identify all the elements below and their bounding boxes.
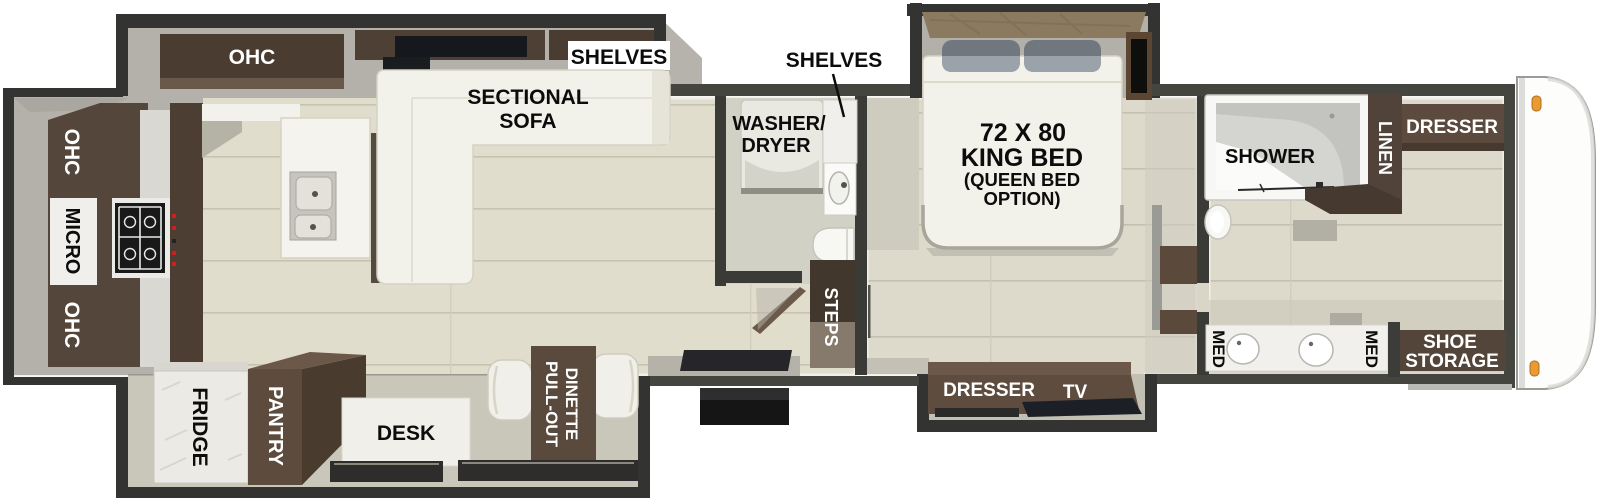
svg-text:TV: TV <box>1063 382 1088 403</box>
svg-text:DRYER: DRYER <box>741 135 811 157</box>
svg-text:MED: MED <box>1362 330 1381 368</box>
svg-text:FRIDGE: FRIDGE <box>188 387 211 466</box>
svg-text:DINETTE: DINETTE <box>562 368 581 441</box>
svg-text:STEPS: STEPS <box>821 287 841 346</box>
svg-text:SHELVES: SHELVES <box>786 49 882 72</box>
svg-text:MED: MED <box>1209 330 1228 368</box>
svg-text:SOFA: SOFA <box>499 110 556 133</box>
svg-text:OPTION): OPTION) <box>983 188 1060 209</box>
svg-text:PANTRY: PANTRY <box>264 386 286 467</box>
svg-text:OHC: OHC <box>60 129 83 176</box>
svg-text:72 X 80: 72 X 80 <box>980 119 1066 147</box>
svg-text:MICRO: MICRO <box>61 208 83 275</box>
svg-text:OHC: OHC <box>60 302 83 349</box>
svg-text:SHOE: SHOE <box>1423 332 1477 353</box>
svg-text:OHC: OHC <box>229 46 276 69</box>
svg-text:PULL-OUT: PULL-OUT <box>542 361 561 448</box>
svg-text:KING BED: KING BED <box>961 144 1083 172</box>
svg-text:(QUEEN BED: (QUEEN BED <box>964 169 1080 190</box>
svg-text:LINEN: LINEN <box>1375 121 1395 175</box>
svg-text:SHOWER: SHOWER <box>1225 146 1316 168</box>
svg-text:STORAGE: STORAGE <box>1405 351 1499 372</box>
svg-text:DESK: DESK <box>377 422 435 445</box>
svg-text:SECTIONAL: SECTIONAL <box>467 86 589 109</box>
svg-text:DRESSER: DRESSER <box>943 380 1035 401</box>
svg-text:WASHER/: WASHER/ <box>732 113 826 135</box>
svg-text:SHELVES: SHELVES <box>571 46 667 69</box>
svg-text:DRESSER: DRESSER <box>1406 117 1498 138</box>
